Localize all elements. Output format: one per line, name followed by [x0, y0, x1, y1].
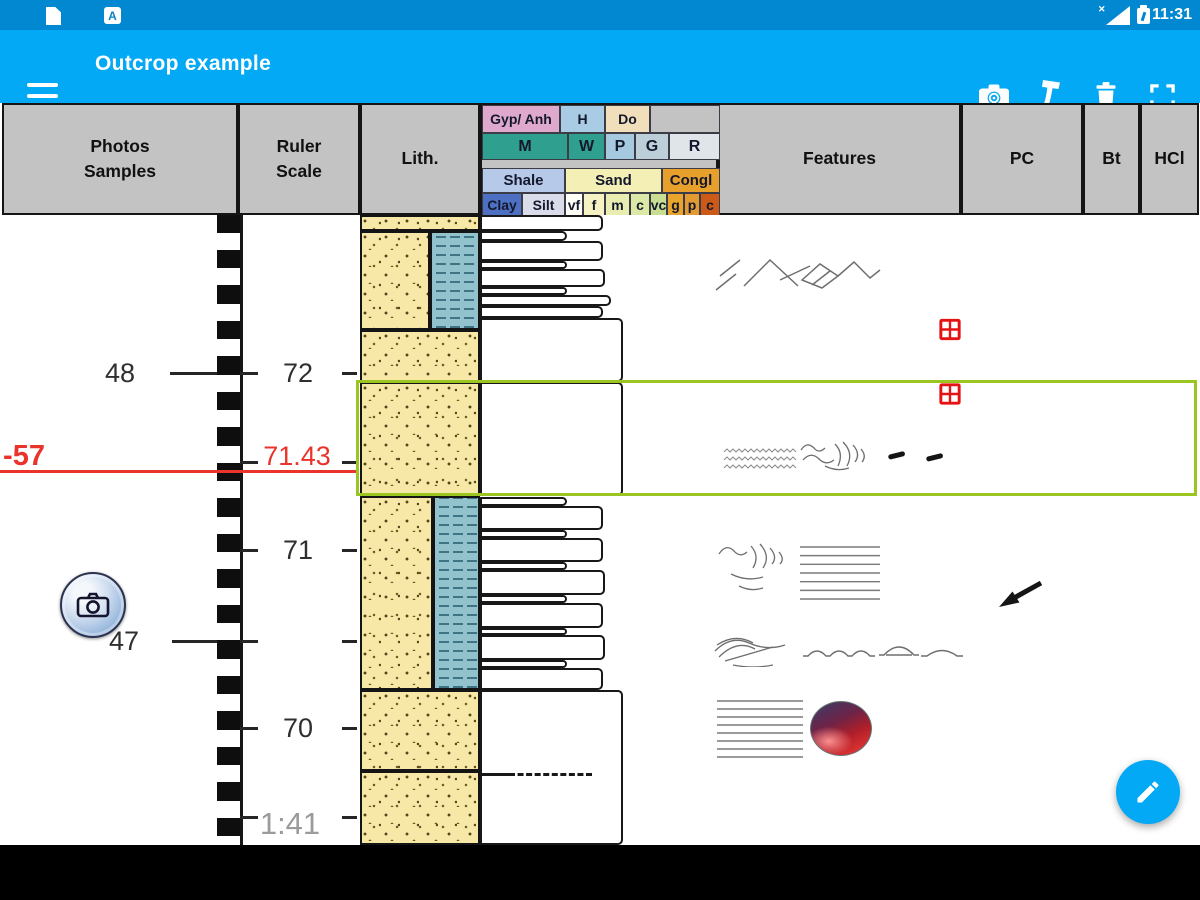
bed-outline[interactable] — [480, 562, 567, 570]
bed-outline[interactable] — [480, 635, 605, 660]
bed-outline[interactable] — [480, 318, 623, 382]
sample-tick — [170, 372, 217, 375]
bed-outline[interactable] — [480, 668, 603, 690]
grain-size-header: Gyp/ AnhHDoMWPGRShaleSandConglClaySiltvf… — [480, 103, 718, 215]
feature-arrow-symbol[interactable] — [997, 577, 1043, 611]
feature-concretion-symbol[interactable] — [810, 701, 872, 756]
datum-red-line — [0, 470, 359, 473]
grain-header-cell-M[interactable]: M — [482, 133, 568, 160]
ruler-block — [217, 676, 240, 695]
depth-label: 72 — [268, 358, 328, 389]
ruler-block — [217, 215, 240, 233]
lith-block-carb[interactable] — [433, 496, 480, 690]
ruler-tick — [240, 727, 258, 730]
ruler-block — [217, 356, 240, 375]
depth-label: -57 — [0, 440, 50, 473]
header-label: Samples — [84, 159, 156, 184]
header-col-ruler[interactable]: RulerScale — [238, 103, 360, 215]
ruler-block — [217, 250, 240, 269]
signal-icon — [1106, 6, 1130, 25]
feature-lens-symbol[interactable] — [879, 638, 919, 660]
ruler-tick — [240, 372, 258, 375]
lith-block-sand[interactable] — [360, 496, 433, 690]
battery-icon — [1137, 8, 1150, 24]
lith-block-carb[interactable] — [430, 231, 480, 330]
grain-header-cell-m[interactable]: m — [605, 193, 630, 217]
feature-crinkle-laminae-symbol[interactable] — [722, 446, 798, 472]
header-label: Bt — [1102, 146, 1120, 171]
ruler-tick — [240, 640, 258, 643]
signal-roaming-mark: ✕ — [1098, 4, 1106, 15]
bed-outline[interactable] — [480, 231, 567, 241]
header-label: PC — [1010, 146, 1034, 171]
ruler-line — [240, 215, 243, 845]
header-col-lith[interactable]: Lith. — [360, 103, 480, 215]
notification-a-badge-icon: A — [104, 7, 121, 24]
ruler-block — [217, 640, 240, 659]
bed-outline[interactable] — [480, 241, 603, 261]
depth-label: 71.43 — [255, 441, 339, 472]
grain-header-cell-Congl[interactable]: Congl — [662, 168, 720, 193]
grain-header-cell-W[interactable]: W — [568, 133, 605, 160]
bed-outline[interactable] — [480, 506, 603, 530]
lith-block-sand[interactable] — [360, 690, 480, 771]
grain-header-cell-blank[interactable] — [650, 105, 720, 133]
lith-tick — [342, 549, 357, 552]
feature-crossbeds-symbol[interactable] — [714, 246, 884, 300]
feature-wave-ripple-symbol[interactable] — [717, 538, 799, 596]
bed-outline[interactable] — [480, 530, 567, 538]
ruler-block — [217, 285, 240, 304]
header-label: Photos — [90, 134, 149, 159]
grain-header-cell-vf[interactable]: vf — [565, 193, 583, 217]
lith-tick — [342, 640, 357, 643]
depth-label: 70 — [268, 713, 328, 744]
app-screen: A ✕ 11:31 Outcrop example PhotosSamplesR… — [0, 0, 1200, 900]
lith-tick — [342, 727, 357, 730]
pencil-icon — [1134, 778, 1162, 806]
ruler-tick — [240, 549, 258, 552]
grain-header-cell-c[interactable]: c — [700, 193, 720, 217]
depth-label: 1:41 — [246, 806, 334, 842]
header-col-features[interactable]: Features — [718, 103, 961, 215]
feature-lens-row-symbol[interactable] — [803, 643, 877, 661]
feature-trough-lam-symbol[interactable] — [713, 627, 799, 667]
ruler-block — [217, 427, 240, 446]
lith-tick — [342, 461, 357, 464]
depth-label: 71 — [268, 535, 328, 566]
ruler-block — [217, 782, 240, 801]
grain-header-cell-c[interactable]: c — [630, 193, 650, 217]
header-col-bt[interactable]: Bt — [1083, 103, 1140, 215]
feature-clast-symbol[interactable] — [923, 451, 947, 464]
grain-header-cell-Shale[interactable]: Shale — [482, 168, 565, 193]
grain-header-cell-f[interactable]: f — [583, 193, 605, 217]
bed-outline[interactable] — [480, 269, 605, 287]
feature-burrow-grid-icon[interactable] — [939, 383, 961, 405]
notification-file-icon — [46, 7, 61, 25]
bed-outline[interactable] — [480, 287, 567, 295]
header-label: Features — [803, 146, 876, 171]
bed-outline[interactable] — [480, 570, 605, 595]
grain-header-cell-g[interactable]: g — [667, 193, 684, 217]
lith-block-sand[interactable] — [360, 330, 480, 382]
grain-header-cell-Gyp/ Anh[interactable]: Gyp/ Anh — [482, 105, 560, 133]
header-label: Ruler — [277, 134, 322, 159]
grain-header-cell-Clay[interactable]: Clay — [482, 193, 522, 217]
log-canvas[interactable]: 484772717071.43-571:41 — [0, 215, 1200, 845]
android-nav-bar — [0, 845, 1200, 900]
feature-hlines-symbol[interactable] — [717, 697, 803, 761]
header-label: Lith. — [402, 146, 439, 171]
lith-block-sand[interactable] — [360, 771, 480, 845]
column-header-row: PhotosSamplesRulerScaleLith.FeaturesPCBt… — [0, 103, 1200, 215]
lith-block-sand[interactable] — [360, 215, 480, 231]
sample-tick — [172, 640, 217, 643]
header-col-photos[interactable]: PhotosSamples — [2, 103, 238, 215]
clock-time: 11:31 — [1152, 6, 1192, 24]
lith-tick — [342, 372, 357, 375]
bed-outline[interactable] — [480, 628, 567, 635]
ruler-block — [217, 605, 240, 624]
bed-outline[interactable] — [480, 261, 567, 269]
feature-lens-flat-symbol[interactable] — [921, 643, 963, 661]
ruler-block — [217, 498, 240, 517]
ruler-block — [217, 534, 240, 553]
ruler-block — [217, 747, 240, 766]
grain-header-cell-Silt[interactable]: Silt — [522, 193, 565, 217]
feature-flaser-symbol[interactable] — [799, 438, 879, 472]
ruler-block — [217, 392, 240, 411]
feature-hlines-symbol[interactable] — [800, 544, 880, 602]
grain-header-cell-R[interactable]: R — [669, 133, 720, 160]
grain-header-cell-vc[interactable]: vc — [650, 193, 667, 217]
ruler-block — [217, 321, 240, 340]
ruler-block — [217, 818, 240, 837]
lith-tick — [342, 816, 357, 819]
header-label: HCl — [1154, 146, 1184, 171]
header-col-pc[interactable]: PC — [961, 103, 1083, 215]
bed-outline[interactable] — [480, 538, 603, 562]
lith-block-sand[interactable] — [360, 231, 430, 330]
app-bar: Outcrop example — [0, 30, 1200, 103]
grain-header-cell-Sand[interactable]: Sand — [565, 168, 662, 193]
grain-header-cell-Do[interactable]: Do — [605, 105, 650, 133]
grain-header-cell-H[interactable]: H — [560, 105, 605, 133]
header-col-hcl[interactable]: HCl — [1140, 103, 1199, 215]
bed-outline[interactable] — [480, 690, 623, 845]
bed-outline[interactable] — [480, 295, 611, 306]
ruler-block — [217, 569, 240, 588]
grain-header-cell-G[interactable]: G — [635, 133, 669, 160]
bed-outline[interactable] — [480, 215, 603, 231]
status-bar: A ✕ 11:31 — [0, 0, 1200, 30]
depth-label: 47 — [94, 626, 154, 657]
bed-outline[interactable] — [480, 306, 603, 318]
feature-clast-symbol[interactable] — [885, 449, 909, 462]
feature-burrow-grid-icon[interactable] — [939, 318, 961, 341]
bed-outline[interactable] — [480, 497, 567, 506]
bed-outline[interactable] — [480, 660, 567, 668]
grain-header-cell-P[interactable]: P — [605, 133, 635, 160]
bed-outline[interactable] — [480, 603, 603, 628]
page-title: Outcrop example — [95, 52, 271, 76]
edit-fab-button[interactable] — [1116, 760, 1180, 824]
depth-label: 48 — [90, 358, 150, 389]
grain-header-cell-p[interactable]: p — [684, 193, 700, 217]
ruler-block — [217, 711, 240, 730]
bed-outline[interactable] — [480, 595, 567, 603]
selection-box[interactable] — [356, 380, 1197, 496]
header-label: Scale — [276, 159, 322, 184]
